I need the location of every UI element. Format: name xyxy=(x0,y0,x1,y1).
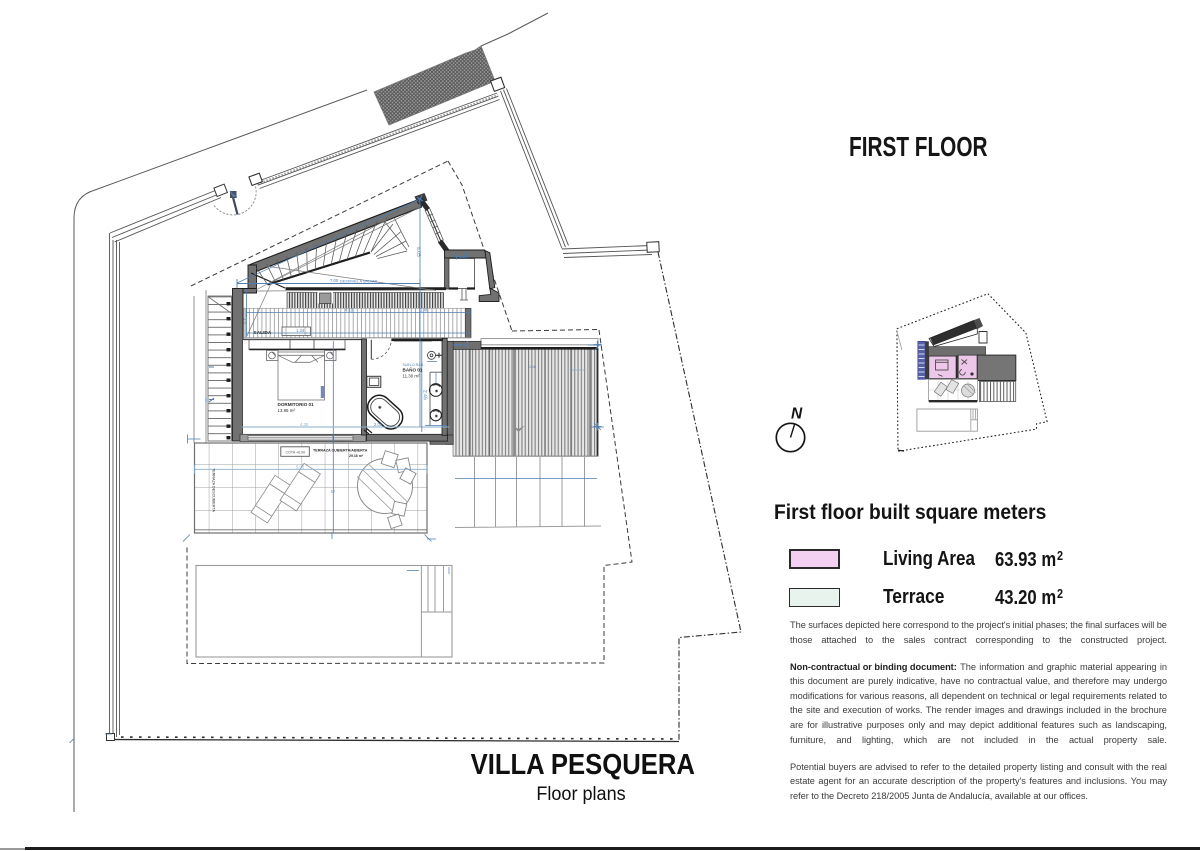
svg-text:5: 5 xyxy=(329,490,335,493)
svg-text:13.95 m²: 13.95 m² xyxy=(278,408,296,413)
svg-text:1.5: 1.5 xyxy=(243,318,248,325)
svg-text:1.46: 1.46 xyxy=(420,308,429,313)
svg-text:29.16 m²: 29.16 m² xyxy=(349,454,364,458)
svg-text:5.05: 5.05 xyxy=(415,247,421,257)
svg-text:N: N xyxy=(791,406,803,423)
svg-text:5.00: 5.00 xyxy=(296,464,305,469)
svg-text:DESNIVEL A SALVAR: DESNIVEL A SALVAR xyxy=(340,280,378,284)
svg-text:DORMITORIO 01: DORMITORIO 01 xyxy=(278,402,315,407)
svg-text:2.45: 2.45 xyxy=(422,390,428,400)
svg-text:1.10: 1.10 xyxy=(529,365,536,369)
svg-text:7.00: 7.00 xyxy=(330,278,339,283)
svg-text:11.30 m²: 11.30 m² xyxy=(403,374,421,379)
svg-text:TERRAZA DESCUBIERTA: TERRAZA DESCUBIERTA xyxy=(212,468,216,512)
svg-text:COTA +6.90: COTA +6.90 xyxy=(286,450,306,454)
svg-text:4.19: 4.19 xyxy=(345,308,354,313)
svg-text:1.60: 1.60 xyxy=(459,254,468,259)
svg-text:SALIDA: SALIDA xyxy=(254,330,272,336)
svg-text:4.30: 4.30 xyxy=(300,422,309,427)
svg-text:BAÑO 01: BAÑO 01 xyxy=(403,367,423,373)
svg-text:SUELO RAD.: SUELO RAD. xyxy=(403,363,425,367)
svg-text:TERRAZA CUBIERTA/ABIERTA: TERRAZA CUBIERTA/ABIERTA xyxy=(313,449,368,453)
svg-text:2.05: 2.05 xyxy=(374,422,383,427)
svg-text:1.34: 1.34 xyxy=(296,328,305,333)
